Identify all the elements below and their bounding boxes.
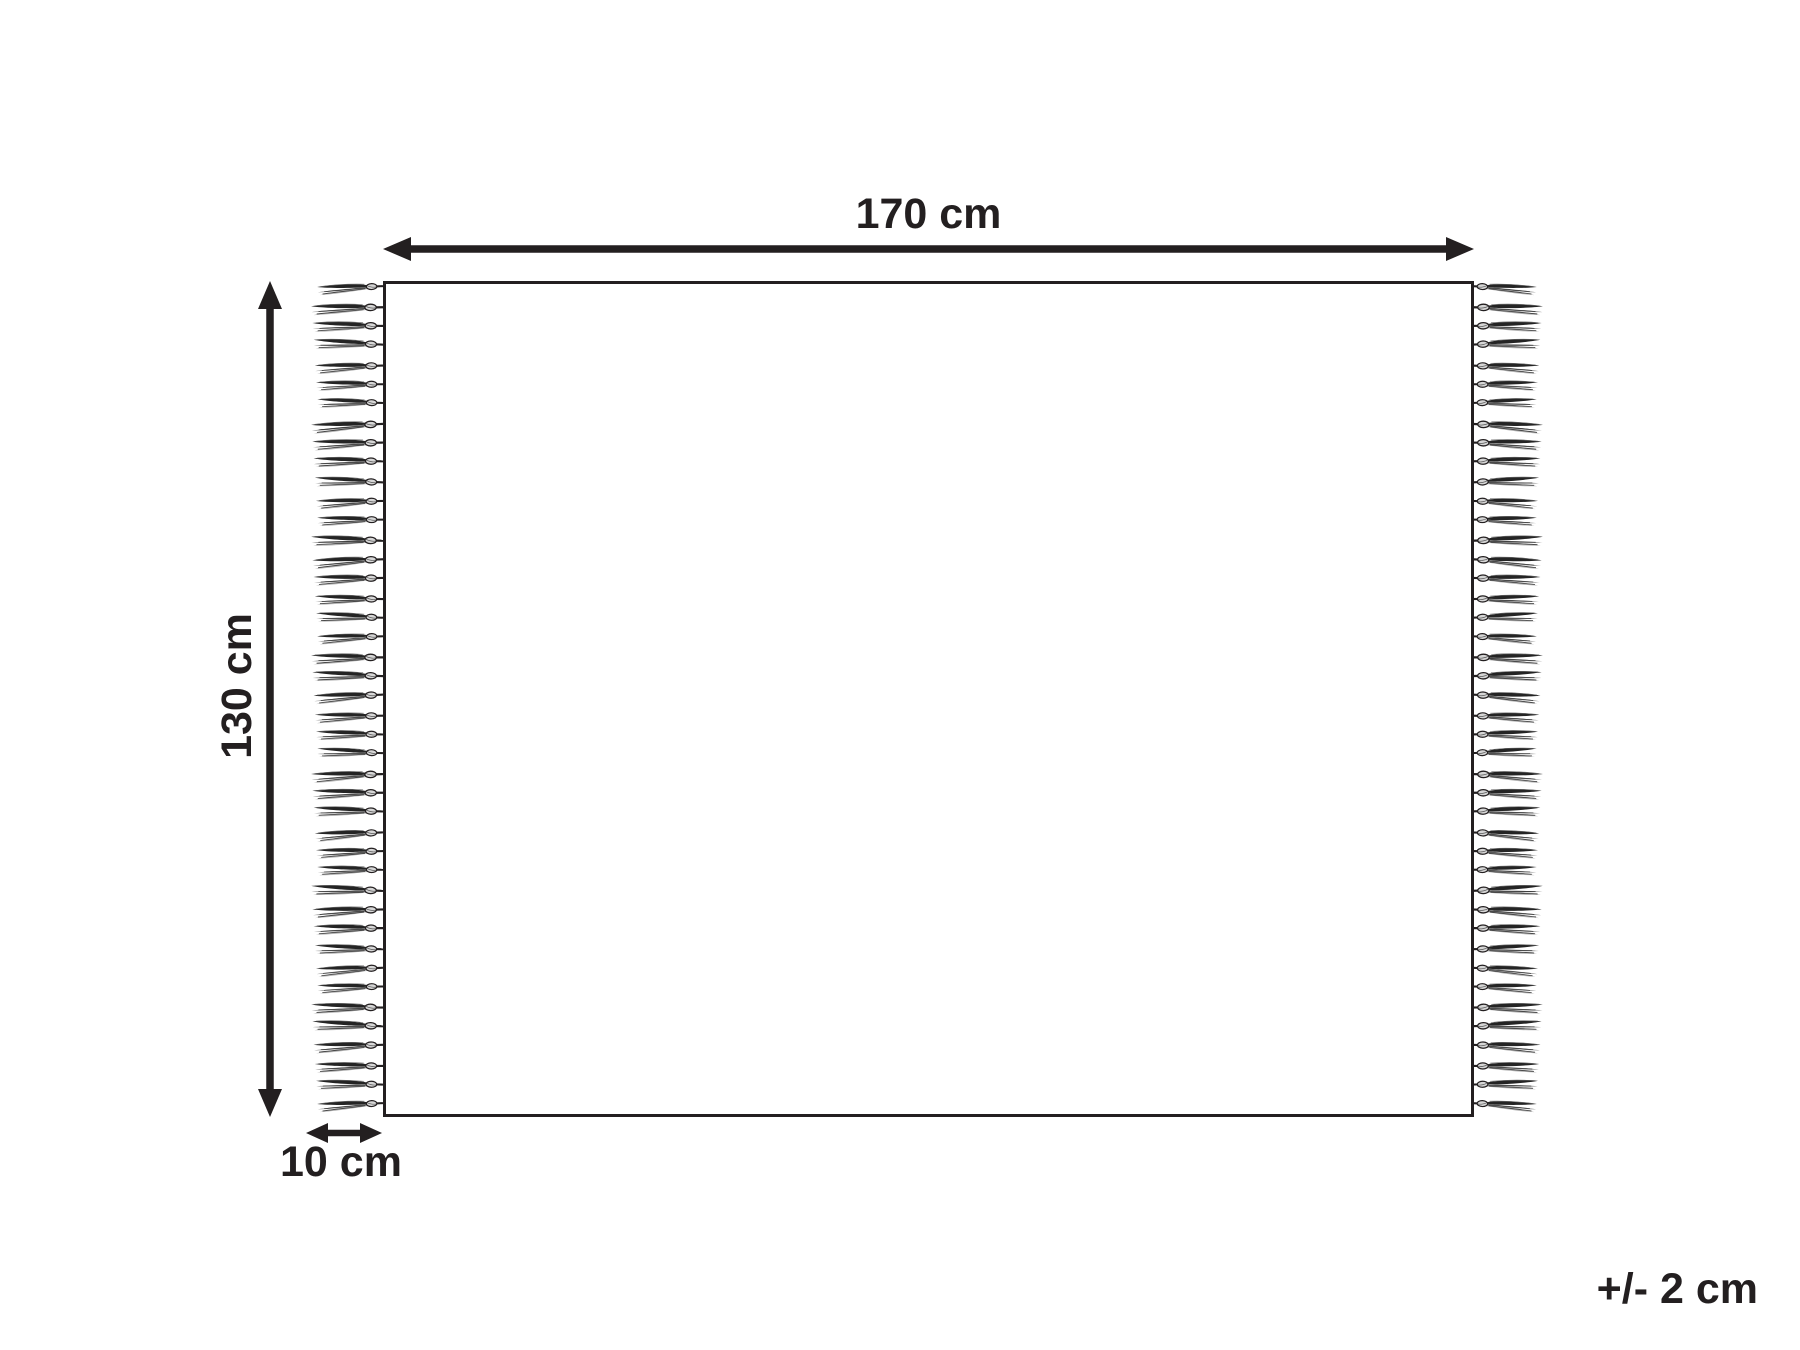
width-arrowhead-left	[383, 237, 411, 261]
tassel	[316, 848, 383, 859]
tassel	[312, 439, 383, 450]
tassel	[1471, 516, 1537, 526]
tassel	[1471, 983, 1537, 994]
tassel	[315, 712, 383, 723]
tassel	[312, 789, 383, 799]
tassel	[1471, 747, 1537, 759]
tassel	[316, 612, 383, 625]
tassel	[316, 498, 383, 510]
rug-outline	[383, 281, 1474, 1117]
tassel	[1471, 556, 1542, 569]
tassel	[315, 829, 384, 842]
tassel	[1471, 304, 1543, 316]
tassel	[1471, 730, 1538, 741]
tassel	[1471, 498, 1538, 510]
tassel	[1471, 944, 1540, 956]
tassel	[313, 457, 383, 468]
fringe-width-label: 10 cm	[280, 1137, 402, 1189]
tassel	[1471, 884, 1543, 898]
tassel	[315, 362, 384, 374]
height-arrowhead-bottom	[258, 1089, 282, 1117]
tassel	[313, 691, 383, 704]
tassel	[1471, 283, 1537, 295]
tassel	[311, 654, 383, 665]
tassel	[316, 730, 383, 741]
tassel	[1471, 866, 1537, 877]
tassel	[311, 884, 383, 898]
tassel	[1471, 398, 1537, 409]
tassel	[1471, 770, 1543, 783]
tassel	[1471, 1100, 1537, 1112]
tassel	[317, 398, 383, 409]
tassel	[1471, 1041, 1541, 1053]
tassel	[1471, 457, 1541, 468]
tassel	[1471, 612, 1538, 625]
tassel	[1471, 712, 1539, 723]
tassel	[315, 476, 384, 489]
tassel	[1471, 906, 1542, 918]
tassel	[1471, 691, 1541, 704]
tassel	[1471, 964, 1538, 977]
tassel	[313, 1041, 383, 1053]
tassel	[1471, 671, 1542, 683]
tassel	[1471, 381, 1538, 391]
tassel	[317, 283, 383, 295]
tassel	[1471, 574, 1541, 585]
tolerance-label: +/- 2 cm	[1597, 1264, 1758, 1316]
tassel	[1471, 1003, 1543, 1015]
tassel	[311, 535, 383, 548]
tassel	[317, 866, 383, 877]
tassel	[1471, 439, 1542, 450]
tassel	[314, 925, 383, 935]
tassel	[1471, 1079, 1538, 1091]
tassel	[1471, 1020, 1542, 1033]
tassel	[311, 1003, 383, 1015]
tassel	[1471, 535, 1543, 548]
tassel	[1471, 925, 1540, 935]
height-label: 130 cm	[212, 596, 264, 776]
tassel	[316, 381, 383, 391]
width-arrowhead-right	[1446, 237, 1474, 261]
tassel	[315, 595, 383, 606]
tassel	[1471, 338, 1541, 351]
tassel	[311, 304, 383, 316]
tassel	[1471, 848, 1538, 859]
tassel	[1471, 476, 1540, 489]
tassel	[312, 556, 383, 569]
fringe-right	[1471, 278, 1549, 1120]
tassel	[312, 671, 383, 683]
tassel	[317, 983, 383, 994]
tassel	[312, 906, 383, 918]
tassel	[1471, 806, 1541, 818]
tassel	[315, 944, 384, 956]
tassel	[1471, 362, 1540, 374]
tassel	[316, 964, 383, 977]
tassel	[313, 806, 383, 818]
tassel	[315, 1062, 383, 1072]
tassel	[1471, 321, 1542, 332]
height-arrowhead-top	[258, 281, 282, 309]
tassel	[1471, 633, 1537, 644]
tassel	[317, 747, 383, 759]
tassel	[1471, 1062, 1539, 1072]
tassel	[311, 420, 383, 434]
tassel	[1471, 654, 1543, 665]
tassel	[312, 1020, 383, 1033]
tassel	[317, 516, 383, 526]
tassel	[1471, 789, 1542, 799]
dimension-diagram: 170 cm 130 cm 10 cm +/- 2 cm	[0, 0, 1800, 1350]
tassel	[317, 1100, 383, 1112]
tassel	[1471, 829, 1540, 842]
tassel	[1471, 420, 1543, 434]
tassel	[313, 338, 383, 351]
tassel	[1471, 595, 1539, 606]
tassel	[317, 633, 383, 644]
tassel	[313, 574, 383, 585]
width-label: 170 cm	[383, 189, 1474, 241]
tassel	[312, 321, 383, 332]
tassel	[316, 1079, 383, 1091]
tassel	[311, 770, 383, 783]
fringe-left	[305, 278, 383, 1120]
